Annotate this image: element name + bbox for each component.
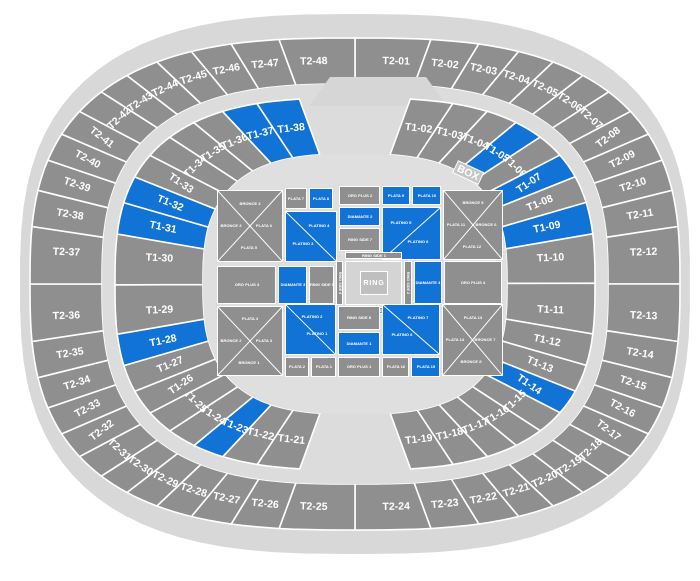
diagonal-divider-icon [218,307,282,375]
floor-oro-plus-2[interactable]: ORO PLUS 2 [339,186,380,205]
floor-oro-plus-4[interactable]: ORO PLUS 4 [444,261,502,304]
floor-platino-3-4[interactable]: PLATINO 4PLATINO 3 [285,211,337,262]
floor-plata-9[interactable]: PLATA 9 [382,186,410,205]
floor-diamante-3[interactable]: DIAMANTE 3 [278,266,307,304]
floor-label: RING SIDE 2 [406,272,410,294]
floor-label: PLATA 7 [288,196,304,200]
floor-label: DIAMANTE 1 [347,341,372,345]
diagonal-divider-icon [383,305,439,354]
floor-label: ORO PLUS 4 [461,280,486,284]
floor-label: PLATA 1 [315,365,331,369]
floor-ring[interactable]: RING [360,271,388,295]
floor-plata-15[interactable]: PLATA 15 [411,357,440,377]
floor-label: RING SIDE 7 [347,237,371,241]
floor-label: RING SIDE 4 [338,272,342,294]
floor-platino-1-2[interactable]: PLATINO 2PLATINO 1 [285,304,336,355]
floor-label: RING [363,279,384,286]
floor-label: ORO PLUS 1 [347,365,372,369]
floor-diamante-1[interactable]: DIAMANTE 1 [338,332,380,355]
floor-platino-7-8[interactable]: PLATINO 7PLATINO 8 [382,304,440,355]
floor-ring-side-2[interactable]: RING SIDE 2 [404,261,412,305]
diagonal-divider-icon [286,212,336,261]
floor-label: PLATA 8 [313,196,329,200]
floor-bronce-plata-nw[interactable]: BRONCE 4BRONCE 3PLATA 6PLATA 5 [217,190,283,262]
diagonal-divider-icon [218,191,282,261]
section-t2-36[interactable]: T2-36 [30,284,104,342]
floor-plata-10[interactable]: PLATA 10 [412,186,441,205]
floor-ring-side-7[interactable]: RING SIDE 7 [339,228,380,251]
floor-label: RING SIDE 8 [347,316,371,320]
floor-oro-plus-3[interactable]: ORO PLUS 3 [217,266,276,304]
floor-plata-1[interactable]: PLATA 1 [311,357,336,377]
floor-map: BRONCE 4BRONCE 3PLATA 6PLATA 5PLATA 7PLA… [214,182,504,392]
floor-label: DIAMANTE 3 [280,283,305,287]
floor-label: RING SIDE 5 [309,283,333,287]
floor-label: PLATA 16 [386,365,404,369]
floor-plata-2[interactable]: PLATA 2 [285,357,309,377]
floor-oro-plus-1[interactable]: ORO PLUS 1 [338,357,380,377]
floor-label: PLATA 2 [289,365,305,369]
floor-diamante-2[interactable]: DIAMANTE 2 [339,207,380,226]
floor-plata-16[interactable]: PLATA 16 [382,357,409,377]
diagonal-divider-icon [444,191,502,259]
floor-plata-8[interactable]: PLATA 8 [309,188,333,209]
floor-diamante-4[interactable]: DIAMANTE 4 [414,261,442,304]
floor-plata-bronce-sw[interactable]: PLATA 4BRONCE 2PLATA 3BRONCE 1 [217,306,283,376]
floor-ring-side-4[interactable]: RING SIDE 4 [336,261,343,305]
floor-label: PLATA 10 [417,193,435,197]
floor-ring-side-1[interactable]: RING SIDE 1 [345,252,402,259]
floor-label: RING SIDE 1 [361,253,385,257]
arena-seat-map: T2-01T2-02T2-03T2-04T2-05T2-06T2-07T2-08… [0,0,700,581]
floor-ring-side-8[interactable]: RING SIDE 8 [338,306,380,330]
floor-label: ORO PLUS 3 [234,283,259,287]
diagonal-divider-icon [286,305,335,354]
diagonal-divider-icon [443,305,502,375]
floor-label: DIAMANTE 2 [347,214,372,218]
floor-label: DIAMANTE 4 [416,280,441,284]
floor-plata-bronce-se[interactable]: PLATA 13PLATA 14BRONCE 7BRONCE 8 [442,304,503,376]
floor-bronce-plata-ne[interactable]: BRONCE 5PLATA 11BRONCE 6PLATA 12 [443,190,503,260]
floor-ring-side-5[interactable]: RING SIDE 5 [309,266,334,304]
floor-label: PLATA 15 [416,365,434,369]
floor-plata-7[interactable]: PLATA 7 [285,188,307,209]
floor-label: ORO PLUS 2 [347,193,372,197]
section-t2-12[interactable]: T2-12 [607,227,681,285]
floor-label: PLATA 9 [388,193,404,197]
